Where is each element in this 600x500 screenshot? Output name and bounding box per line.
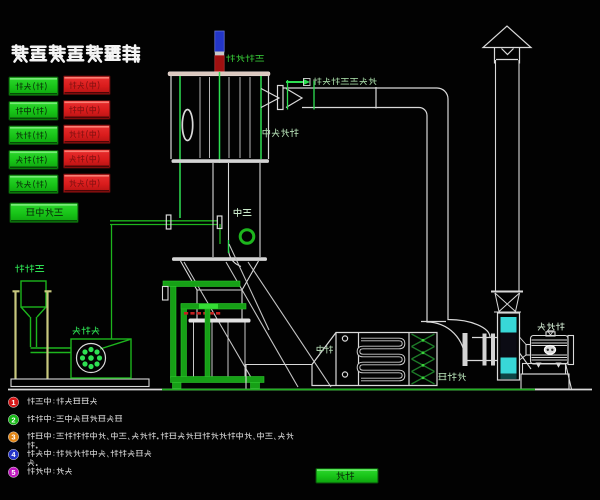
svg-text:1: 1 <box>11 398 15 407</box>
svg-text:3: 3 <box>11 433 15 442</box>
svg-text:2: 2 <box>11 415 15 424</box>
svg-text:5: 5 <box>11 468 15 477</box>
